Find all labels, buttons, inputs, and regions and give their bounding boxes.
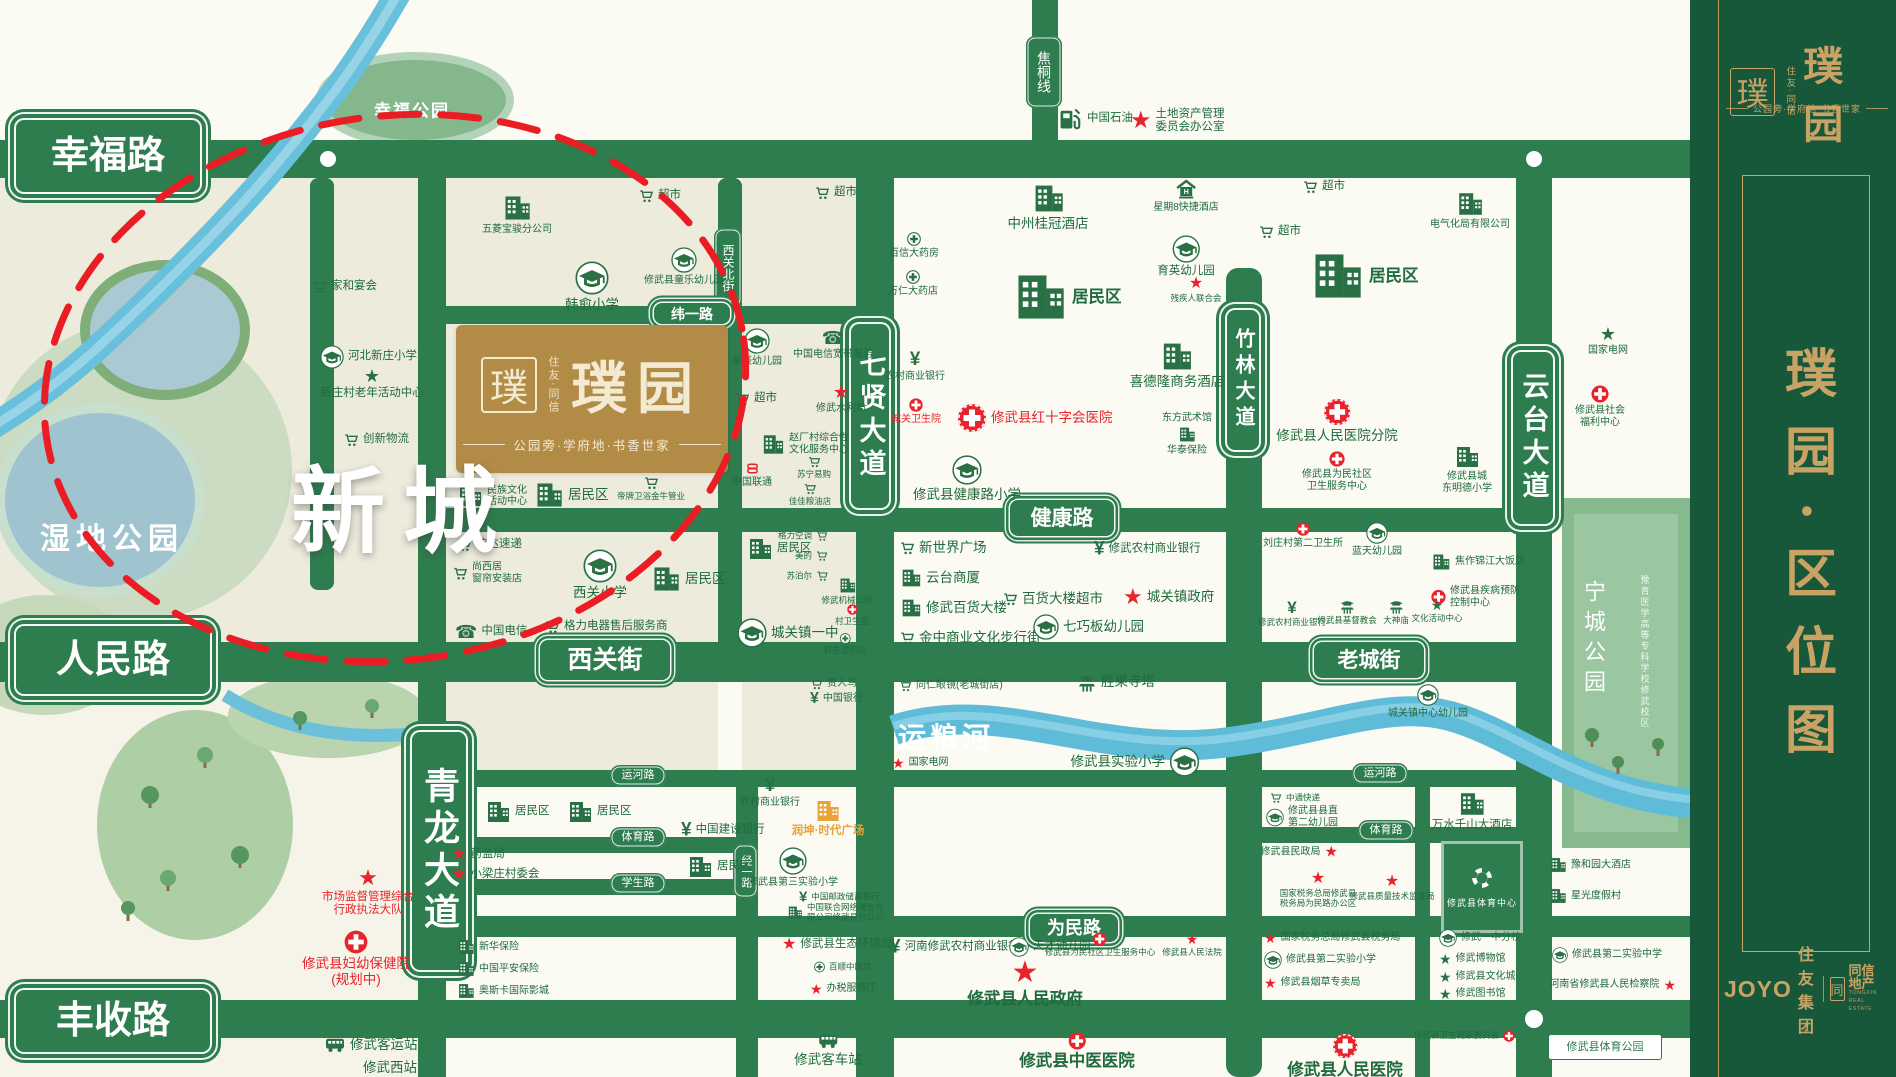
- poi-label: 苏泊尔: [786, 571, 812, 581]
- poi-label: 蓝天幼儿园: [1352, 546, 1402, 558]
- gcross-icon: [814, 962, 825, 973]
- poi-label: 修武县实验小学: [1071, 754, 1166, 770]
- poi-label: 农村商业银行: [885, 371, 945, 383]
- poi-label: 大神庙: [1383, 616, 1409, 626]
- map-poi: 星光度假村: [1562, 896, 1634, 913]
- map-poi: 胜果寺塔: [1090, 682, 1168, 702]
- road-label: 老城街: [1310, 638, 1428, 682]
- poi-label: 喜德隆商务酒店: [1130, 374, 1225, 390]
- rstar-icon: ★: [892, 756, 905, 770]
- map-poi: 修武县人民医院分院: [1337, 411, 1459, 457]
- map-poi: ★残疾人联合会: [1196, 289, 1247, 317]
- rstar-icon: ★: [1189, 276, 1203, 292]
- panel-title-frame: 璞园·区位图: [1742, 175, 1870, 952]
- poi-label: 河南修武农村商业银行: [905, 940, 1020, 953]
- map-poi: 超市: [1272, 232, 1314, 246]
- rstar-icon: ★: [833, 383, 849, 401]
- rcross-icon: [846, 604, 857, 615]
- map-poi: 居民区: [547, 495, 622, 523]
- rstar-icon: ★: [810, 982, 823, 996]
- map-poi: 豫和园大酒店: [1562, 865, 1644, 882]
- poi-label: 电气化局有限公司: [1430, 219, 1510, 231]
- poi-label: 国家电网: [909, 757, 949, 769]
- map-poi: ★修武水利局: [841, 396, 891, 428]
- map-poi: 百信大药房: [914, 245, 964, 273]
- hosp-icon: [1323, 398, 1351, 426]
- map-poi: 修武县红十字会医院: [970, 418, 1126, 448]
- poi-label: 修武县第三实验小学: [748, 877, 838, 889]
- joyo-logo: JOYO: [1724, 976, 1792, 1003]
- map-poi: ★市场监督管理综合行政执法大队: [368, 880, 460, 930]
- road-label: 运河路: [1352, 763, 1408, 784]
- gstar-icon: ★: [364, 367, 380, 385]
- poi-label: 苏宁易购: [797, 470, 831, 480]
- bld-icon: [687, 855, 713, 879]
- tagline-line-right: [679, 444, 721, 445]
- poi-label: 河南省修武县人民检察院: [1549, 979, 1659, 991]
- phone-icon: ☎: [822, 329, 844, 347]
- poi-label: 中国石油: [1087, 112, 1133, 125]
- unicom-icon: [746, 462, 759, 475]
- map-poi: 金中商业文化步行街: [913, 638, 1054, 654]
- map-poi: 格力电器售后服务商: [558, 627, 681, 641]
- map-poi: 格力空调: [815, 536, 865, 547]
- road-label: 幸福路: [10, 114, 206, 198]
- area-label: 宁城公园: [1582, 580, 1604, 700]
- map-poi: 修武县人民医院: [1345, 1046, 1461, 1077]
- bld-icon: [1549, 888, 1567, 905]
- poi-label: 云台商厦: [926, 570, 980, 586]
- school-icon: [779, 847, 807, 875]
- rstar-icon: ★: [452, 847, 466, 863]
- map-poi: ★城关镇政府: [1136, 597, 1227, 619]
- road-label: 丰收路: [10, 984, 216, 1058]
- cart-icon: [803, 483, 816, 495]
- cart-icon: [545, 620, 560, 634]
- gcross-icon: [906, 270, 920, 284]
- poi-label: 修武客车站: [794, 1052, 862, 1068]
- map-poi: ★修武县人民法院: [1192, 945, 1252, 971]
- cart-icon: [1259, 225, 1274, 239]
- poi-label: 中国平安保险: [479, 963, 539, 975]
- poi-label: 修武县健康路小学: [913, 487, 1021, 503]
- poi-label: 七巧板幼儿园: [1063, 619, 1144, 635]
- rstar-icon: ★: [1123, 586, 1143, 608]
- map-poi: 居民区: [664, 579, 739, 607]
- map-poi: ★修武县烟草专卖局: [1277, 983, 1374, 997]
- school-icon: [1439, 929, 1457, 947]
- bld-icon: [787, 906, 803, 921]
- poi-label: 修武水利局: [816, 403, 866, 415]
- poi-label: 修武县人民政府: [967, 990, 1083, 1009]
- rstar-icon: ★: [1130, 109, 1152, 133]
- poi-label: 星光度假村: [1571, 890, 1621, 902]
- map-poi: 修武县县直第二幼儿园: [1279, 817, 1351, 840]
- map-poi: 修武县中医医院: [1077, 1045, 1193, 1077]
- poi-label: 刘庄村第二卫生所: [1263, 538, 1343, 550]
- bld-icon: [1431, 553, 1451, 571]
- map-poi: 尚西居窗帘安装店: [466, 573, 535, 596]
- school-icon: [737, 618, 767, 648]
- map-poi: 万水千山大酒店: [1472, 804, 1553, 845]
- cart-icon: [899, 680, 912, 692]
- map-poi: 修武百货大楼: [913, 608, 1020, 628]
- poi-label: 国家电网: [1588, 345, 1628, 357]
- map-poi: 蓝天幼儿园: [1377, 535, 1427, 571]
- poi-label: 河北新庄小学: [348, 350, 417, 363]
- panel-gold-line: [1718, 0, 1719, 1077]
- poi-label: 韩愈小学: [565, 297, 619, 313]
- area-label: 幸福公园: [374, 103, 450, 120]
- poi-label: 星辰幼儿园: [732, 356, 782, 368]
- bld-icon: [1012, 271, 1068, 323]
- gbld-icon: [815, 799, 841, 823]
- poi-label: 修武县生态环境局: [800, 938, 892, 951]
- rcross-icon: [1503, 1030, 1515, 1042]
- cart-icon: [312, 280, 327, 294]
- poi-label: 修武县第二实验中学: [1572, 949, 1662, 961]
- developer-subtitle: TONGXIN REAL ESTATE: [1849, 990, 1886, 1013]
- bank-icon: ¥: [890, 938, 901, 957]
- road-label: 运河路: [610, 765, 666, 786]
- bld-icon: [534, 481, 564, 509]
- poi-label: 金中商业文化步行街: [919, 630, 1041, 646]
- poi-label: 村卫生室: [835, 617, 869, 627]
- map-poi: 修武县妇幼保健院(规划中): [356, 943, 464, 1000]
- project-seal-logo: 璞: [481, 357, 537, 413]
- bld-icon: [1549, 857, 1567, 874]
- poi-label: 修武农村商业银行: [1109, 542, 1201, 555]
- bld-icon: [838, 577, 856, 594]
- poi-label: 创新物流: [363, 433, 409, 446]
- map-poi: 华泰保险: [1187, 439, 1227, 470]
- map-poi: 焦作锦江大饭店: [1444, 562, 1538, 580]
- school-icon: [1266, 808, 1284, 826]
- school-icon: [744, 328, 770, 354]
- cart-icon: [453, 566, 468, 580]
- panel-logo: 璞 住友·同信 璞园: [1730, 34, 1886, 150]
- map-terrain: [0, 0, 1896, 1077]
- map-poi: ★国家电网: [905, 763, 962, 777]
- poi-label: 中国建设银行: [696, 823, 765, 836]
- bld-icon: [567, 800, 593, 824]
- cart-icon: [816, 531, 828, 542]
- bus-icon: [324, 1036, 346, 1054]
- map-poi: 美的: [815, 556, 848, 567]
- map-poi: 修武县实验小学: [1186, 762, 1315, 792]
- poi-label: 修武县第二实验小学: [1286, 954, 1376, 966]
- cart-icon: [815, 186, 830, 200]
- project-marker-box: 璞 住友·同信 璞园 公园旁·学府地·书香世家: [456, 325, 728, 473]
- svg-text:H: H: [1183, 189, 1188, 196]
- cart-icon: [1270, 793, 1282, 804]
- cart-icon: [810, 678, 823, 690]
- school-icon: [1009, 937, 1029, 957]
- bld-icon: [457, 983, 475, 1000]
- poi-label: 中州桂冠酒店: [1008, 216, 1089, 232]
- map-poi: 七巧板幼儿园: [1046, 627, 1157, 653]
- poi-label: 居民区: [1369, 267, 1419, 286]
- road-label: 人民路: [10, 620, 216, 700]
- poi-label: 格力空调: [778, 531, 812, 541]
- poi-label: 百货大楼超市: [1022, 591, 1103, 607]
- poi-label: 小梁庄村委会: [470, 868, 539, 881]
- hosp-icon: [957, 403, 987, 433]
- poi-label: 焦作锦江大饭店: [1455, 556, 1525, 568]
- poi-label: 城关镇政府: [1147, 589, 1215, 605]
- group-name: 住友集团: [1798, 941, 1817, 1037]
- bld-icon: [900, 598, 922, 618]
- poi-label: 修武县质量技术监督局: [1349, 892, 1434, 902]
- poi-label: 万仁大药店: [888, 286, 938, 298]
- cart-icon: [1303, 180, 1318, 194]
- map-poi: 新世界广场: [913, 548, 1000, 564]
- poi-label: 修武县为民社区卫生服务中心: [1045, 948, 1156, 958]
- map-poi: 百货大楼超市: [1016, 599, 1116, 615]
- poi-label: 东方武术馆: [1162, 412, 1212, 424]
- rcross-icon: [1296, 522, 1310, 536]
- cart-icon: [807, 456, 820, 468]
- map-poi: 百顺中医馆: [827, 967, 885, 978]
- gstar-icon: ★: [1439, 987, 1452, 1001]
- poi-label: 国家税务总局修武县税务局: [1281, 932, 1401, 944]
- bld-icon: [457, 961, 475, 978]
- road-label: 学生路: [610, 873, 666, 894]
- school-icon: [1264, 951, 1282, 969]
- map-poi: 超市: [652, 196, 694, 210]
- rcross-icon: [1329, 451, 1345, 467]
- map-poi: 修武县城东明德小学: [1467, 458, 1517, 507]
- poi-label: 修武西站: [363, 1060, 417, 1076]
- poi-label: 修武图书馆: [1456, 988, 1506, 1000]
- school-icon: [1169, 747, 1199, 777]
- bank-icon: ¥: [681, 821, 692, 840]
- poi-label: 超市: [658, 189, 681, 202]
- hotel-icon: H: [1174, 178, 1198, 200]
- poi-label: 新华保险: [479, 941, 519, 953]
- map-poi: 创新物流: [357, 440, 422, 454]
- school-icon: [575, 261, 609, 295]
- panel-tagline: 公园旁·学府地·书香世家: [1726, 102, 1888, 115]
- poi-label: 城关镇中心幼儿园: [1388, 708, 1468, 720]
- poi-label: 贵人鸟: [827, 678, 857, 690]
- map-poi: 修武县卫生健康委员会: [1502, 1036, 1603, 1048]
- map-poi: 居民区: [580, 812, 645, 836]
- bld-icon: [1454, 445, 1480, 469]
- cart-icon: [643, 476, 658, 490]
- poi-label: 修武博物馆: [1456, 953, 1506, 965]
- gcross-icon: [839, 633, 850, 644]
- map-poi: 修武客车站: [828, 1045, 896, 1077]
- panel-footer: JOYO 住友集团 同 同信地产 TONGXIN REAL ESTATE: [1724, 941, 1886, 1037]
- school-icon: [583, 549, 617, 583]
- bld-icon: [485, 800, 511, 824]
- map-poi: ★办税服务厅: [823, 989, 890, 1003]
- map-poi: 好生堂药店: [845, 646, 888, 669]
- poi-label: 居民区: [568, 487, 609, 503]
- poi-label: 五菱宝骏分公司: [482, 224, 552, 236]
- poi-label: 星期8快捷酒店: [1153, 202, 1219, 214]
- poi-label: 修武县烟草专卖局: [1281, 977, 1361, 989]
- map-poi: ★修武县人民政府: [1025, 971, 1141, 1022]
- poi-label: 西关小学: [573, 585, 627, 601]
- bld-icon: [457, 939, 475, 956]
- poi-label: 修武县为民社区卫生服务中心: [1302, 469, 1372, 492]
- road-label: 西关街: [536, 636, 674, 684]
- map-poi: 韩愈小学: [592, 274, 646, 326]
- poi-label: 城关卫生院: [891, 414, 941, 426]
- developer-name: 同信地产: [1849, 964, 1886, 990]
- cart-icon: [1003, 592, 1018, 606]
- poi-label: 好生堂药店: [824, 646, 867, 656]
- cart-icon: [816, 551, 828, 562]
- bank-icon: ¥: [810, 691, 819, 707]
- bld-icon: [1031, 183, 1065, 214]
- poi-label: 修武县基督教会: [1317, 616, 1377, 626]
- poi-label: 中国银行: [823, 693, 863, 705]
- temple-icon: [1077, 672, 1097, 692]
- map-poi: 同仁眼镜(老城街店): [912, 686, 1016, 698]
- rstar-icon: ★: [1311, 871, 1325, 887]
- map-poi: 佳佳粮油店: [810, 496, 853, 520]
- poi-label: 市场监督管理综合行政执法大队: [322, 891, 414, 917]
- poi-label: 修武县城东明德小学: [1442, 471, 1492, 494]
- gstar-icon: ★: [1439, 952, 1452, 966]
- gas-icon: [1057, 106, 1083, 132]
- map-poi: 云台商厦: [913, 578, 993, 598]
- map-poi: 喜德隆商务酒店: [1177, 354, 1272, 403]
- phone-icon: ☎: [455, 623, 477, 641]
- panel-tagline-text: 公园旁·学府地·书香世家: [1753, 102, 1861, 115]
- poi-label: 居民区: [515, 805, 550, 818]
- poi-label: 修武县红十字会医院: [991, 410, 1113, 426]
- developer-seal: 同: [1830, 977, 1845, 1001]
- bank-icon: ¥: [765, 776, 776, 795]
- poi-label: 百信大药房: [889, 248, 939, 260]
- map-poi: 城关镇中心幼儿园: [1428, 697, 1508, 733]
- project-name: 璞园: [571, 344, 703, 425]
- developer-logo: 同 同信地产 TONGXIN REAL ESTATE: [1830, 964, 1886, 1013]
- bld-icon: [1178, 426, 1196, 443]
- poi-label: 奥斯卡国际影城: [479, 985, 549, 997]
- poi-label: 超市: [834, 186, 857, 199]
- gstar-icon: ★: [1439, 970, 1452, 984]
- school-icon: [671, 247, 697, 273]
- poi-label: 华泰保险: [1167, 445, 1207, 457]
- map-poi: 修武西站: [390, 1068, 444, 1077]
- map-poi: 中州桂冠酒店: [1048, 196, 1129, 245]
- poi-label: 美的: [795, 551, 812, 561]
- lifebuoy-icon: [1470, 866, 1494, 890]
- map-poi: 居民区: [1025, 297, 1135, 349]
- hosp-icon: [1332, 1033, 1358, 1059]
- poi-label: 修武农村商业银行: [1258, 618, 1326, 628]
- bank-icon: ¥: [1094, 540, 1105, 559]
- bld-icon: [761, 433, 785, 455]
- map-poi: 修武县健康路小学: [967, 468, 1075, 516]
- rcross-icon: [909, 398, 923, 412]
- poi-label: 修武县妇幼保健院(规划中): [302, 956, 410, 987]
- rcross-icon: [344, 930, 368, 954]
- poi-label: 修武百货大楼: [926, 600, 1007, 616]
- bld-icon: [747, 537, 773, 561]
- map-poi: ★土地资产管理委员会办公室: [1143, 121, 1238, 147]
- project-brand-vertical: 住友·同信: [545, 356, 561, 414]
- map-poi: ¥修武农村商业银行: [1107, 549, 1214, 568]
- map-poi: ★文化活动中心: [1437, 611, 1488, 637]
- poi-label: 文化活动中心: [1411, 614, 1462, 624]
- map-poi: 超市: [748, 399, 790, 413]
- school-icon: [952, 455, 982, 485]
- poi-label: 修武县卫生健康委员会: [1414, 1031, 1499, 1041]
- bld-icon: [900, 568, 922, 588]
- map-poi: 帝牌卫浴金牛管业: [651, 489, 719, 515]
- panel-tagline-line-left: [1726, 108, 1748, 109]
- poi-label: 佳佳粮油店: [789, 497, 832, 507]
- bld-icon: [1456, 191, 1484, 217]
- map-poi: 修武县童乐幼儿园: [684, 260, 764, 300]
- gcross-icon: [907, 232, 921, 246]
- map-poi: 超市: [828, 193, 870, 207]
- poi-label: 格力电器售后服务商: [564, 620, 668, 633]
- tagline-line-left: [463, 444, 505, 445]
- poi-label: 中国电信: [481, 625, 527, 638]
- poi-label: 豫和园大酒店: [1571, 859, 1631, 871]
- poi-label: 修武客运站: [350, 1037, 418, 1053]
- map-poi: ¥中国银行: [823, 699, 876, 715]
- poi-label: 超市: [754, 392, 777, 405]
- poi-label: 修武县文化城: [1456, 971, 1516, 983]
- gstar-icon: ★: [1431, 598, 1444, 612]
- poi-label: 修武县人民医院分院: [1276, 428, 1398, 444]
- poi-label: 百顺中医馆: [829, 962, 872, 972]
- poi-label: 万水千山大酒店: [1432, 819, 1513, 832]
- temple-icon: [1388, 598, 1404, 614]
- rstar-icon: ★: [1264, 931, 1277, 945]
- bld-icon: [651, 565, 681, 593]
- area-label: 豫青医学高等专科学校修武校区: [1640, 575, 1649, 729]
- location-map-poster: 璞 住友·同信 璞园 公园旁·学府地·书香世家 修武县体育中心 幸福路人民路丰收…: [0, 0, 1896, 1077]
- road-label: 焦桐线: [1026, 36, 1062, 108]
- map-poi: 修武县为民社区卫生服务中心: [1337, 464, 1407, 505]
- poi-label: 超市: [1322, 180, 1345, 193]
- poi-label: 中国电信宽带服务: [793, 349, 873, 361]
- rstar-icon: ★: [1325, 845, 1338, 860]
- poi-label: 修武县社会福利中心: [1575, 405, 1625, 428]
- poi-label: 赵厂村综合性文化服务中心: [789, 433, 849, 456]
- map-poi: 奥斯卡国际影城: [470, 991, 562, 1008]
- school-icon: [1366, 522, 1388, 544]
- cart-icon: [900, 631, 915, 645]
- rstar-icon: ★: [1186, 932, 1199, 946]
- poi-label: 居民区: [685, 571, 726, 587]
- rstar-icon: ★: [358, 867, 378, 889]
- map-poi: H星期8快捷酒店: [1186, 191, 1252, 227]
- poi-label: 土地资产管理委员会办公室: [1156, 108, 1225, 134]
- gstar-icon: ★: [1600, 325, 1616, 343]
- panel-tagline-line-right: [1866, 108, 1888, 109]
- map-poi: ★新庄村老年活动中心: [372, 380, 476, 413]
- map-poi: ★国家税务总局修武县税务局: [1277, 938, 1414, 952]
- map-poi: 居民区: [1322, 276, 1432, 328]
- map-poi: 修武县社会福利中心: [1600, 398, 1650, 441]
- cart-icon: [735, 392, 750, 406]
- poi-label: 帝牌卫浴金牛管业: [617, 492, 685, 502]
- map-poi: 超市: [1316, 187, 1358, 201]
- map-poi: ★修武图书馆: [1452, 994, 1519, 1008]
- map-poi: ★修武县生态环境局: [795, 945, 905, 961]
- bus-icon: [817, 1032, 839, 1050]
